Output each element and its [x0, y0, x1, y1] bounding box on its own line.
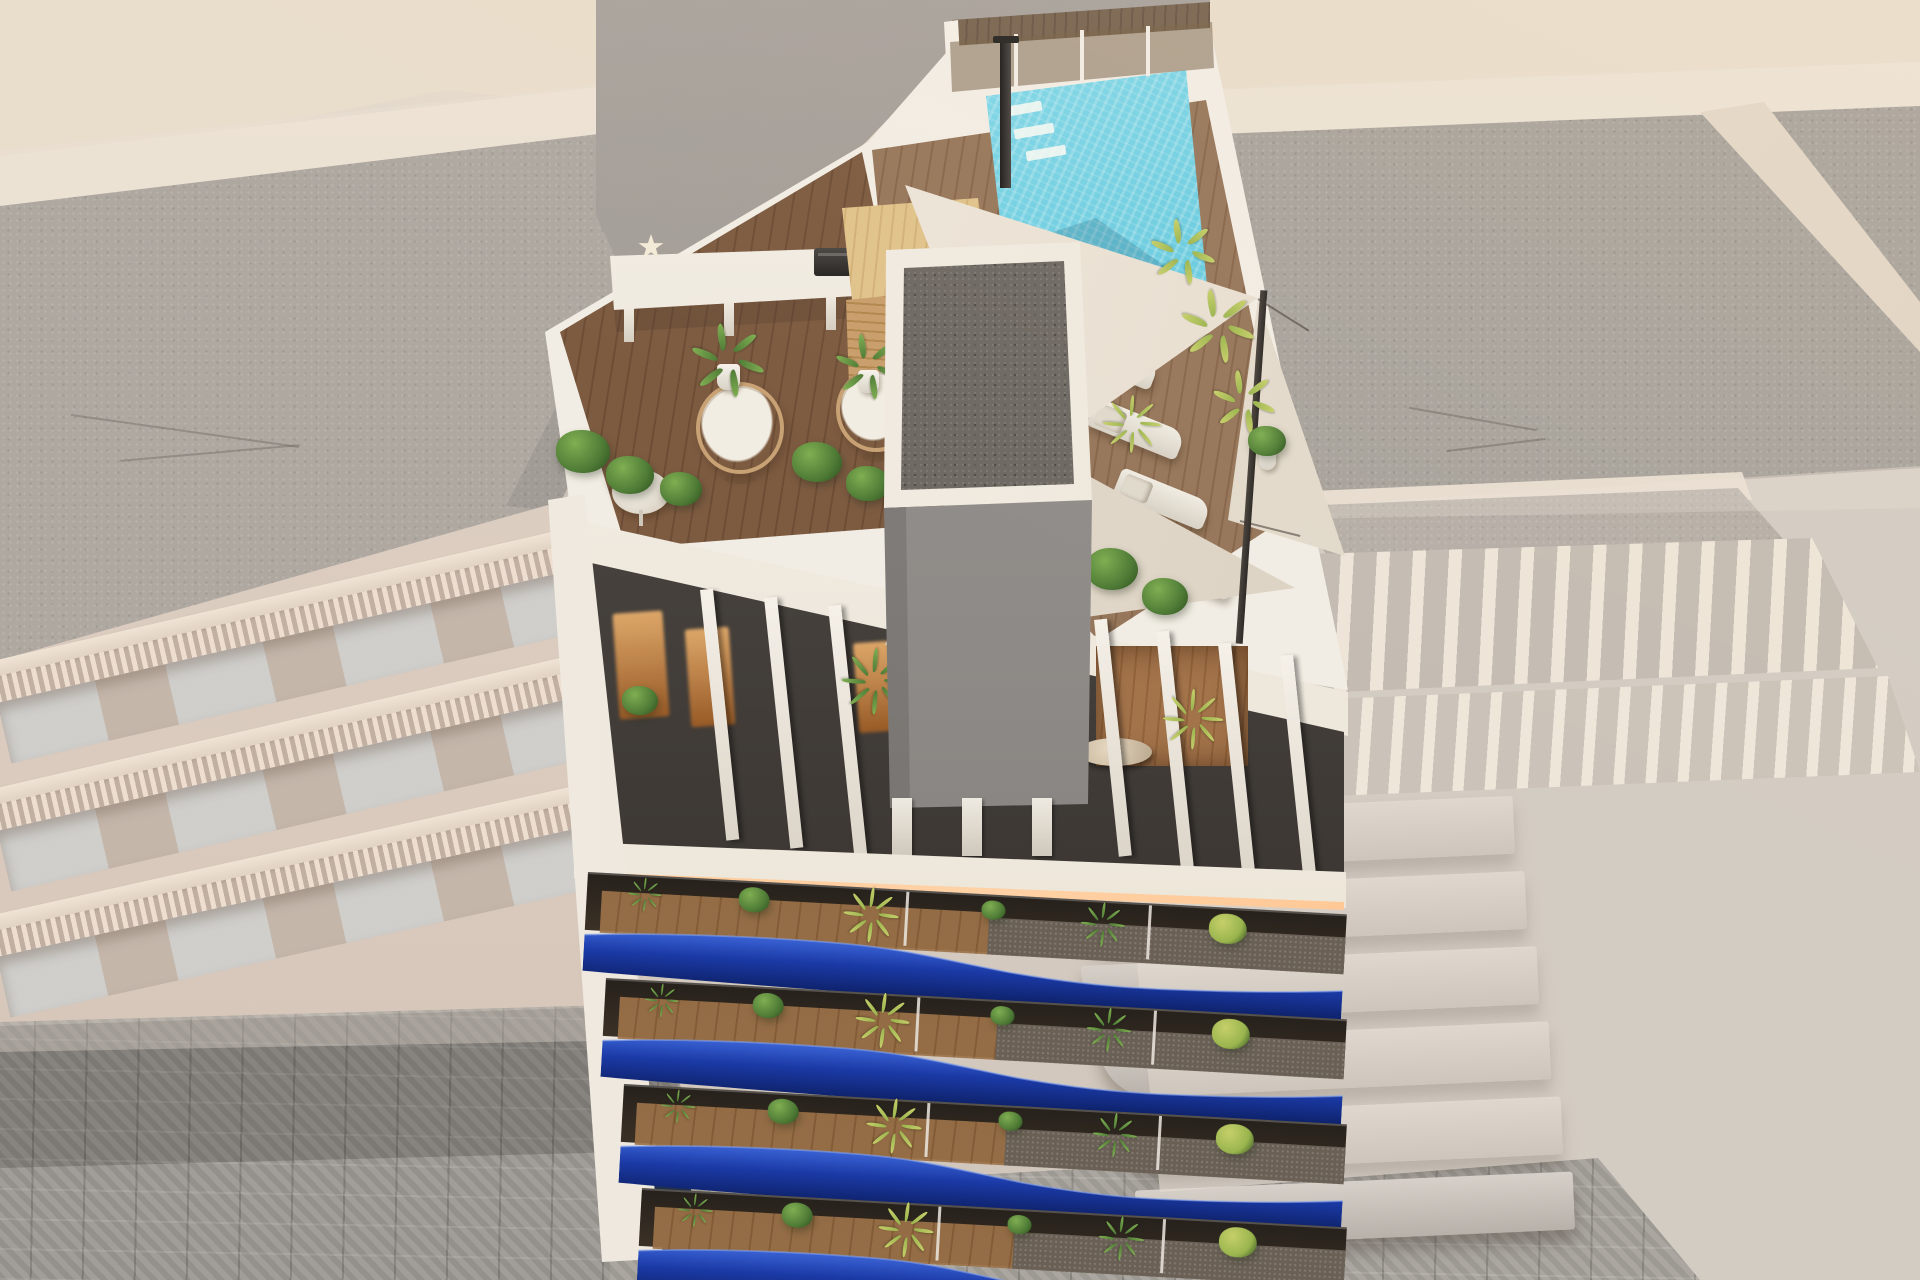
- plant-bush: [1142, 578, 1188, 615]
- plant-palm: [1105, 1220, 1138, 1253]
- plant-palm: [875, 1104, 915, 1144]
- palm-leaf: [1128, 1237, 1144, 1241]
- palm-leaf: [1120, 1216, 1124, 1232]
- counter-leg: [826, 296, 836, 330]
- palm-leaf: [649, 987, 659, 998]
- palm-leaf: [647, 882, 658, 892]
- palm-leaf: [1130, 395, 1134, 416]
- palm-leaf: [1114, 1112, 1118, 1128]
- palm-leaf: [1121, 1133, 1137, 1137]
- shower-head: [993, 36, 1019, 43]
- palm-leaf: [1201, 717, 1223, 721]
- plant-palm: [1112, 402, 1152, 442]
- plant-palm: [649, 986, 674, 1011]
- palm-leaf: [1222, 297, 1247, 322]
- palm-leaf: [694, 1193, 697, 1206]
- plant-palm: [1172, 696, 1214, 738]
- stair-core-leg: [1032, 798, 1052, 856]
- plant-bush: [846, 466, 890, 501]
- plant-palm: [851, 893, 891, 933]
- palm-leaf: [887, 1208, 903, 1225]
- palm-leaf: [1115, 1028, 1131, 1032]
- palm-leaf: [1102, 902, 1106, 918]
- palm-leaf: [887, 1001, 904, 1017]
- plant-bush: [792, 442, 842, 482]
- fence-post: [1080, 30, 1084, 82]
- fence-post: [1146, 26, 1150, 76]
- palm-leaf: [683, 1197, 693, 1208]
- palm-leaf: [911, 1210, 928, 1226]
- palm-leaf: [1113, 1013, 1127, 1026]
- palm-leaf: [1108, 1007, 1112, 1023]
- palm-leaf: [1110, 402, 1128, 420]
- plant-palm: [1222, 376, 1266, 420]
- palm-leaf: [1197, 696, 1215, 714]
- outdoor-shower-column: [1000, 36, 1011, 188]
- palm-leaf: [1170, 696, 1188, 714]
- palm-leaf: [1099, 1117, 1112, 1131]
- plant-bush: [556, 430, 610, 473]
- palm-leaf: [666, 1093, 676, 1104]
- plant-palm: [886, 1208, 926, 1248]
- palm-leaf: [881, 993, 886, 1013]
- palm-leaf: [1093, 1012, 1106, 1026]
- palm-leaf: [1248, 377, 1269, 398]
- plant-palm: [863, 998, 903, 1038]
- plant-palm: [1192, 296, 1244, 348]
- plant-palm: [632, 881, 657, 906]
- plant-bush: [767, 1098, 799, 1124]
- palm-leaf: [1191, 689, 1195, 711]
- palm-leaf: [644, 877, 647, 890]
- barbecue-grill: [814, 248, 852, 276]
- palm-leaf: [632, 881, 642, 892]
- palm-leaf: [873, 648, 878, 672]
- palm-leaf: [1107, 908, 1121, 921]
- plant-bush: [606, 456, 654, 494]
- plant-palm: [1087, 906, 1120, 939]
- aerial-building-render: [0, 0, 1920, 1280]
- palm-leaf: [1140, 422, 1161, 426]
- plant-palm: [702, 330, 754, 382]
- palm-leaf: [1109, 923, 1125, 927]
- plant-bush: [622, 686, 658, 715]
- palm-leaf: [1119, 1119, 1133, 1132]
- plant-palm: [1099, 1117, 1132, 1150]
- plant-bush: [1248, 426, 1286, 456]
- palm-leaf: [681, 1094, 692, 1104]
- palm-leaf: [1136, 402, 1154, 420]
- palm-leaf: [899, 1106, 916, 1122]
- palm-leaf: [1125, 1222, 1139, 1235]
- plant-palm: [1093, 1011, 1126, 1044]
- palm-leaf: [875, 1104, 891, 1121]
- plant-bush: [660, 472, 702, 506]
- plant-palm: [1160, 225, 1206, 271]
- palm-leaf: [664, 988, 675, 998]
- palm-leaf: [1087, 906, 1100, 920]
- stair-core-leg: [892, 798, 912, 856]
- palm-leaf: [851, 893, 867, 910]
- palm-leaf: [893, 1099, 898, 1119]
- palm-leaf: [850, 656, 870, 676]
- palm-leaf: [863, 999, 879, 1016]
- palm-leaf: [1105, 1220, 1118, 1234]
- palm-leaf: [870, 887, 875, 907]
- plant-bush: [1086, 548, 1138, 590]
- stair-core-leg: [962, 798, 982, 856]
- palm-leaf: [905, 1202, 910, 1222]
- plant-palm: [683, 1196, 708, 1221]
- palm-leaf: [1187, 226, 1209, 248]
- counter-leg: [624, 308, 634, 342]
- palm-leaf: [698, 1198, 709, 1208]
- hanging-egg-chair: [696, 382, 784, 474]
- plant-palm: [666, 1092, 691, 1117]
- palm-leaf: [660, 983, 663, 996]
- palm-leaf: [732, 331, 757, 356]
- plant-palm: [845, 340, 891, 386]
- palm-leaf: [875, 895, 892, 911]
- palm-leaf: [677, 1089, 680, 1102]
